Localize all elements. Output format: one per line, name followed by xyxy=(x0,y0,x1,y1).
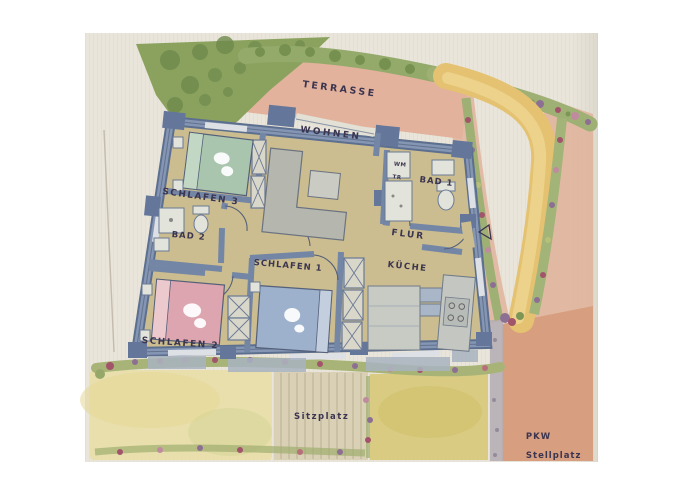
lawn-right xyxy=(370,374,488,460)
bed-schlafen2 xyxy=(152,279,225,345)
wardrobe-schlafen2 xyxy=(228,296,250,340)
label-wm: WM TR xyxy=(387,155,407,182)
label-parking: PKW Stellplatz xyxy=(518,423,581,462)
floorplan-painting xyxy=(0,0,700,500)
wardrobe-wohnen-wall xyxy=(251,140,266,208)
watercolor-floorplan-photo: { "title": "Hand-painted watercolor floo… xyxy=(0,0,700,500)
wardrobe-kitchen-wall xyxy=(342,258,364,350)
label-stellplatz-line2: Stellplatz xyxy=(526,451,582,461)
plot-boundary-line xyxy=(104,130,114,352)
entrance-door-gap xyxy=(466,222,470,248)
bed-schlafen3 xyxy=(183,132,253,195)
nightstand xyxy=(250,282,260,292)
label-tr-line2: TR xyxy=(392,174,402,181)
nightstand xyxy=(142,284,152,295)
nightstand xyxy=(173,137,183,148)
label-pkw-line1: PKW xyxy=(526,432,551,442)
bed-schlafen1 xyxy=(256,286,332,353)
label-sitzplatz: Sitzplatz xyxy=(294,413,349,423)
label-wm-line1: WM xyxy=(394,162,407,169)
